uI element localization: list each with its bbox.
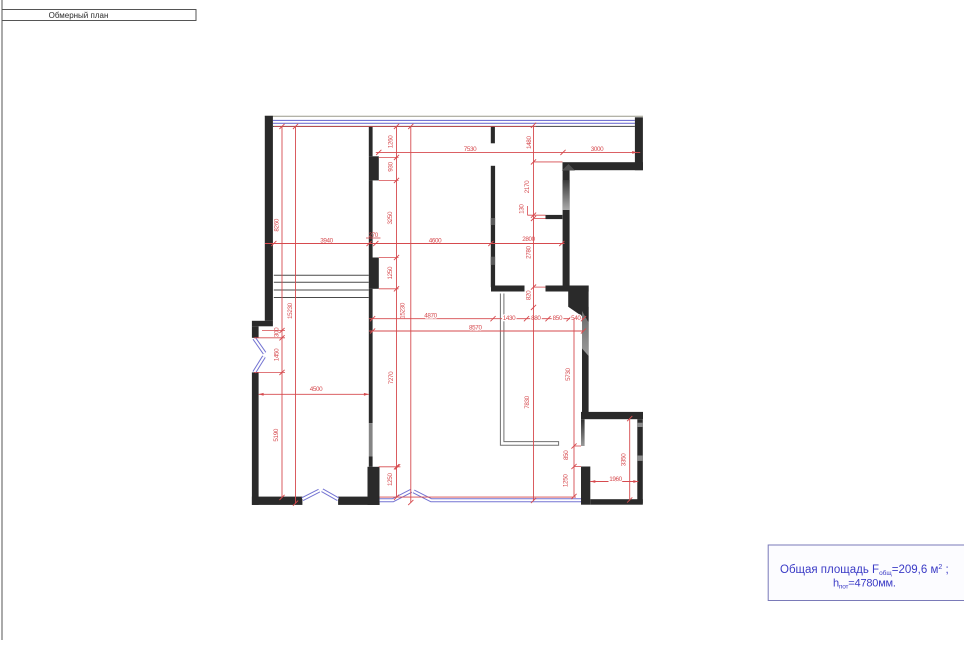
svg-text:4500: 4500 <box>310 386 323 393</box>
svg-text:Обмерный план: Обмерный план <box>49 11 109 20</box>
svg-text:1430: 1430 <box>503 315 516 322</box>
svg-text:3350: 3350 <box>620 453 627 466</box>
svg-text:7530: 7530 <box>464 146 477 153</box>
svg-text:300: 300 <box>274 327 281 337</box>
svg-text:7830: 7830 <box>524 395 531 408</box>
svg-text:2170: 2170 <box>524 180 531 193</box>
svg-text:4600: 4600 <box>429 237 442 244</box>
svg-text:3000: 3000 <box>591 146 604 153</box>
svg-text:850: 850 <box>553 315 563 322</box>
svg-text:880: 880 <box>531 315 541 322</box>
svg-text:3940: 3940 <box>320 237 333 244</box>
svg-text:Общая площадь Fобщ=209,6 м2 ;: Общая площадь Fобщ=209,6 м2 ; <box>780 564 949 577</box>
svg-text:850: 850 <box>563 450 570 460</box>
svg-text:930: 930 <box>388 161 395 171</box>
svg-text:1250: 1250 <box>563 474 570 487</box>
svg-text:5190: 5190 <box>273 428 280 441</box>
svg-text:1250: 1250 <box>387 473 394 486</box>
svg-text:15230: 15230 <box>400 302 407 319</box>
svg-text:1250: 1250 <box>387 266 394 279</box>
svg-text:5730: 5730 <box>565 367 572 380</box>
svg-text:1450: 1450 <box>274 348 281 361</box>
svg-text:8260: 8260 <box>274 218 281 231</box>
svg-text:540: 540 <box>571 315 581 322</box>
svg-text:7270: 7270 <box>388 371 395 384</box>
svg-text:820: 820 <box>525 290 532 300</box>
svg-text:3250: 3250 <box>387 211 394 224</box>
svg-text:130: 130 <box>519 204 526 214</box>
svg-text:8570: 8570 <box>469 325 482 332</box>
svg-text:1480: 1480 <box>526 136 533 149</box>
svg-text:15230: 15230 <box>287 302 294 319</box>
svg-text:4870: 4870 <box>424 313 437 320</box>
svg-text:1260: 1260 <box>387 135 394 148</box>
svg-text:1960: 1960 <box>609 476 622 483</box>
svg-text:2780: 2780 <box>525 245 532 258</box>
